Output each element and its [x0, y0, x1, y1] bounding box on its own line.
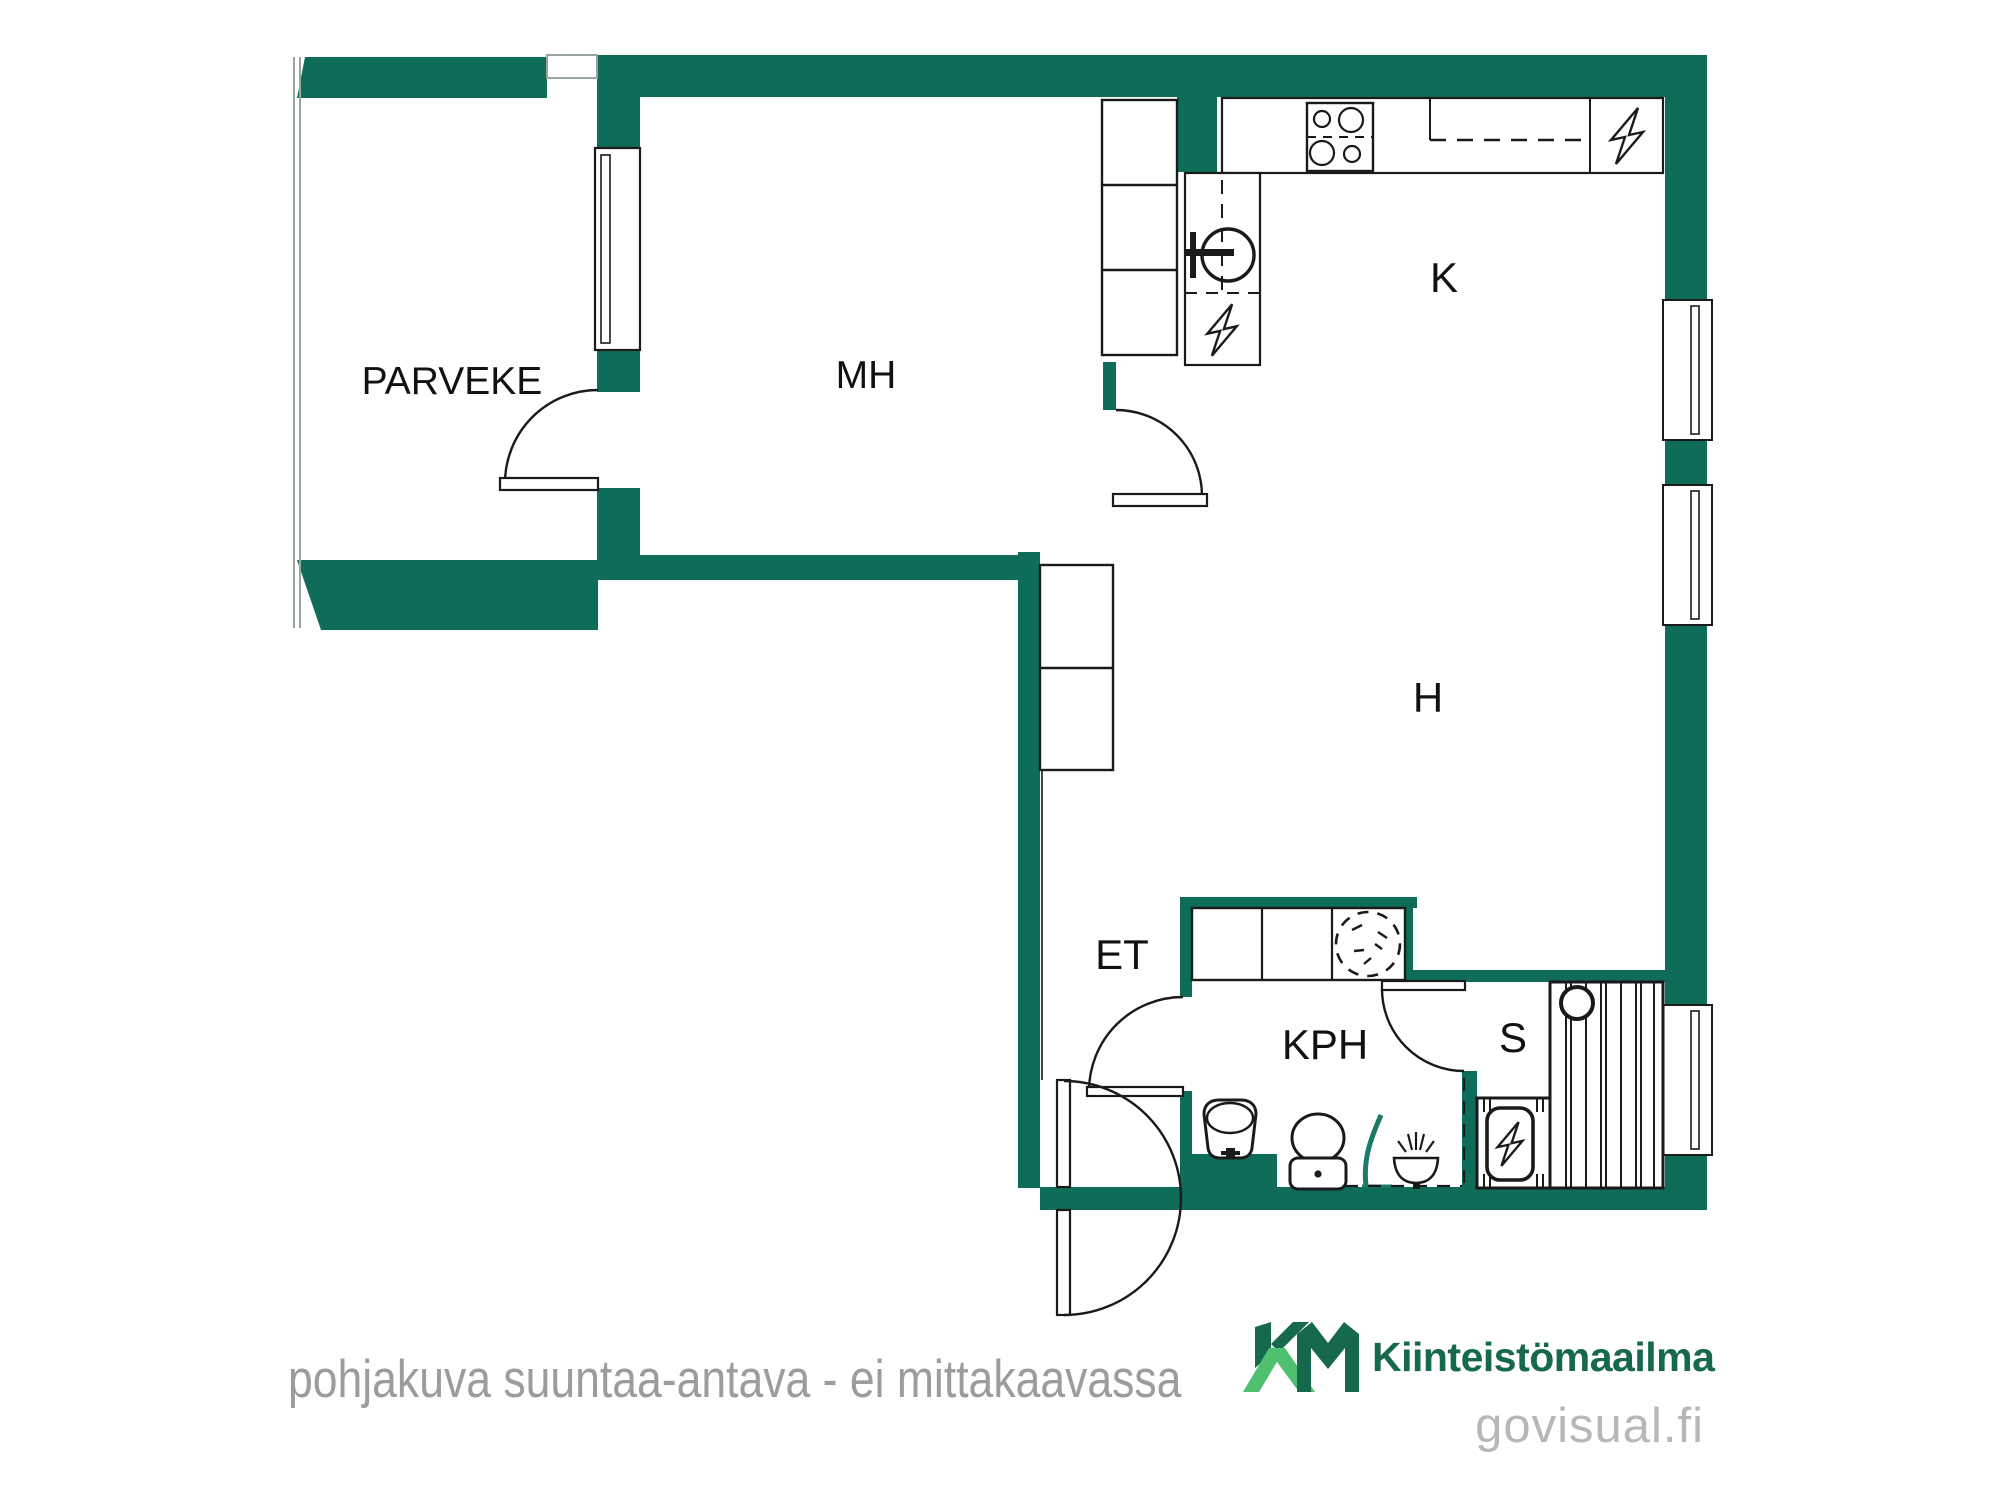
- window-sauna: [1663, 1005, 1712, 1155]
- shower-curtain-icon: [1362, 1115, 1392, 1186]
- door-leaf: [1057, 1210, 1070, 1315]
- wall-balcony-bottom: [297, 560, 598, 630]
- room-label-living: H: [1413, 674, 1443, 721]
- brand-lockup: Kiinteistömaailma: [1240, 1322, 1714, 1392]
- disclaimer-text: pohjakuva suuntaa-antava - ei mittakaava…: [288, 1349, 1181, 1410]
- door-leaf: [500, 478, 598, 490]
- bathroom-door: [1087, 997, 1183, 1096]
- stove-icon: [1307, 103, 1373, 171]
- wall-mh-bottom: [598, 555, 1038, 580]
- wall-west-foot: [1040, 1187, 1058, 1210]
- brand-name: Kiinteistömaailma: [1372, 1334, 1714, 1381]
- wall-mh-door-stub: [1103, 362, 1116, 410]
- room-label-kitchen: K: [1430, 254, 1458, 301]
- bathroom-cabinets: [1192, 908, 1405, 980]
- washbasin-icon: [1204, 1100, 1256, 1158]
- wall-mh-kitchen: [1177, 97, 1217, 172]
- website-text: govisual.fi: [1240, 1398, 1704, 1454]
- window-living: [1663, 485, 1712, 625]
- hallway-cabinet: [1040, 565, 1113, 1080]
- wall-right: [1665, 440, 1707, 485]
- wall-balcony-door-jamb: [597, 488, 640, 560]
- wall-bottom: [1040, 1187, 1707, 1210]
- wall-right: [1665, 625, 1707, 1005]
- wall-top: [597, 55, 1707, 97]
- wall-right: [1665, 55, 1707, 300]
- door-leaf: [1057, 1080, 1070, 1187]
- wardrobe-cabinets: [1102, 100, 1177, 355]
- floorplan-page: PARVEKE MH K H ET KPH S pohjakuva suunta…: [0, 0, 2000, 1500]
- door-arc: [1116, 410, 1202, 496]
- door-arc: [1382, 989, 1464, 1071]
- toilet-icon: [1290, 1114, 1346, 1189]
- floor-drain-icon: [1394, 1132, 1438, 1189]
- wall-balcony-door-jamb: [597, 97, 640, 148]
- wall-kph-west: [1180, 897, 1192, 997]
- km-logo-icon: [1240, 1322, 1362, 1392]
- room-label-entrance: ET: [1095, 931, 1149, 978]
- wall-balcony-door-jamb: [597, 350, 640, 392]
- balcony-door: [500, 148, 640, 490]
- door-leaf: [1113, 494, 1207, 506]
- room-label-sauna: S: [1499, 1014, 1527, 1061]
- bedroom-door: [1113, 410, 1207, 506]
- floorplan-drawing: PARVEKE MH K H ET KPH S: [0, 0, 2000, 1500]
- wall-west: [1018, 552, 1040, 1188]
- door-arc: [505, 390, 598, 483]
- kitchen-counter: [1222, 98, 1663, 173]
- wall-kph-top: [1182, 897, 1417, 908]
- walls: [297, 55, 1707, 1210]
- room-label-balcony: PARVEKE: [362, 360, 543, 403]
- window-kitchen: [1663, 300, 1712, 440]
- room-label-bathroom: KPH: [1282, 1021, 1368, 1068]
- wall-balcony-top: [297, 57, 547, 98]
- room-label-bedroom: MH: [836, 354, 897, 397]
- door-leaf: [1382, 981, 1465, 990]
- balcony-railing-top: [547, 55, 597, 78]
- sauna-light-icon: [1561, 987, 1593, 1019]
- sauna-fittings: [1477, 982, 1663, 1188]
- sauna-heater-icon: [1477, 1098, 1550, 1188]
- sauna-door: [1382, 981, 1465, 1071]
- door-arc: [1089, 997, 1183, 1091]
